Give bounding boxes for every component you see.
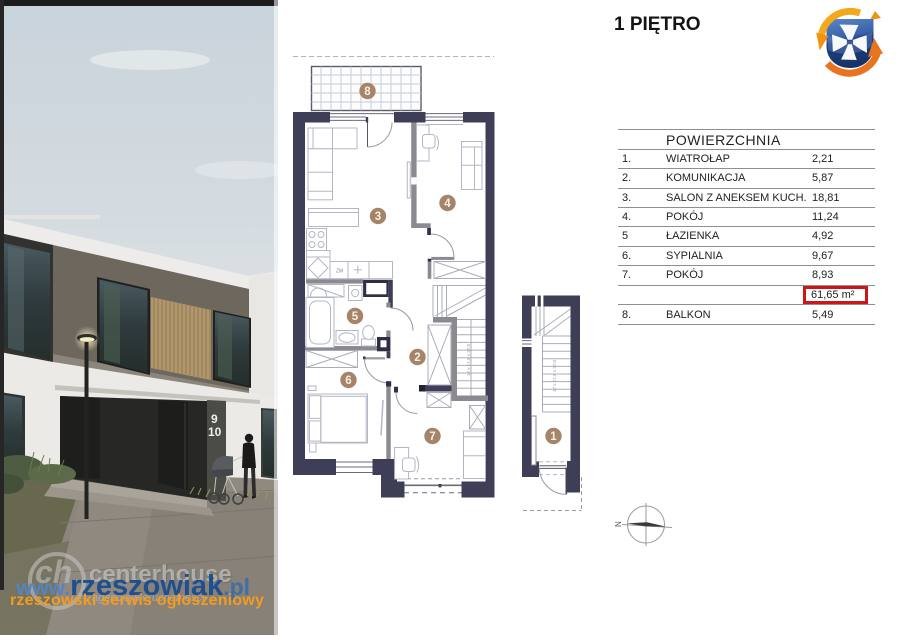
svg-text:6: 6 (345, 375, 351, 387)
svg-text:17 x 17,8 x 27,0: 17 x 17,8 x 27,0 (466, 343, 471, 376)
svg-text:5: 5 (352, 311, 359, 323)
svg-text:8: 8 (364, 86, 371, 98)
svg-text:17 x 17,8 x 27,0: 17 x 17,8 x 27,0 (552, 359, 557, 392)
svg-text:3: 3 (375, 211, 381, 223)
svg-text:7: 7 (429, 431, 435, 443)
svg-text:N: N (614, 521, 623, 527)
svg-text:2: 2 (414, 352, 420, 364)
svg-text:4: 4 (444, 198, 451, 210)
svg-text:ZM: ZM (336, 269, 343, 275)
svg-text:1: 1 (550, 431, 557, 443)
